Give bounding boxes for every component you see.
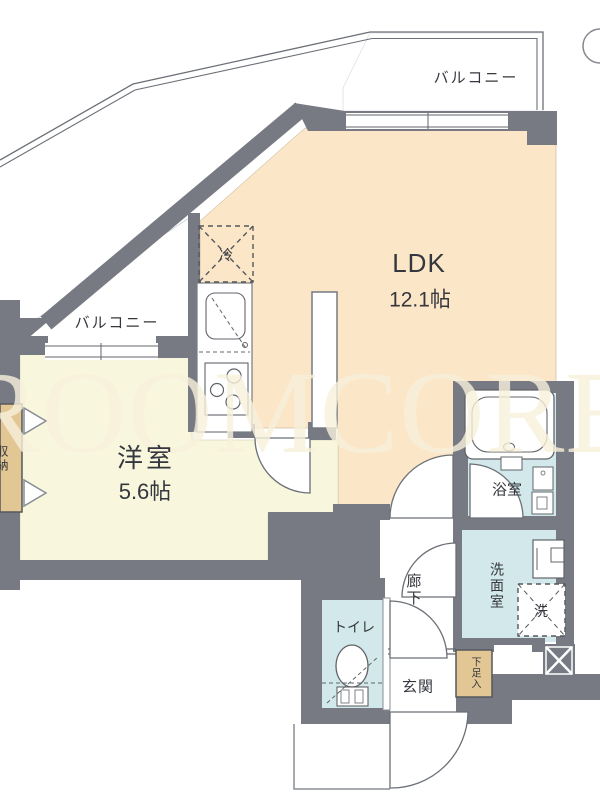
refrigerator-label: 冷: [219, 248, 233, 262]
toilet-label: トイレ: [333, 620, 375, 634]
pipe-shaft-icon: [543, 644, 575, 677]
washer-label: 洗: [534, 604, 548, 618]
western-room-size-label: 5.6帖: [119, 481, 172, 503]
shoe-cabinet-label: 下足入: [469, 657, 479, 690]
entrance-label: 玄関: [402, 680, 434, 695]
washroom-threshold: [494, 645, 532, 671]
toilet-bowl: [336, 645, 368, 687]
bath-fixture: [532, 492, 553, 514]
balcony-left-label: バルコニー: [75, 316, 160, 331]
hallway-label: 廊下: [406, 573, 421, 607]
ldk-size-label: 12.1帖: [389, 290, 451, 311]
washroom-label: 洗面室: [490, 562, 504, 610]
ldk-label: LDK: [392, 250, 446, 276]
bathroom-label: 浴室: [492, 483, 522, 498]
watermark: ROOMCORE: [0, 345, 600, 481]
balcony-top-label: バルコニー: [434, 71, 519, 86]
vanity: [533, 540, 564, 578]
floor-plan: ROOMCORE バルコニー バルコニー LDK 12.1帖 洋室 5.6帖 冷…: [0, 0, 600, 800]
storage-label: 収納: [0, 445, 8, 473]
western-room-label: 洋室: [117, 445, 175, 471]
